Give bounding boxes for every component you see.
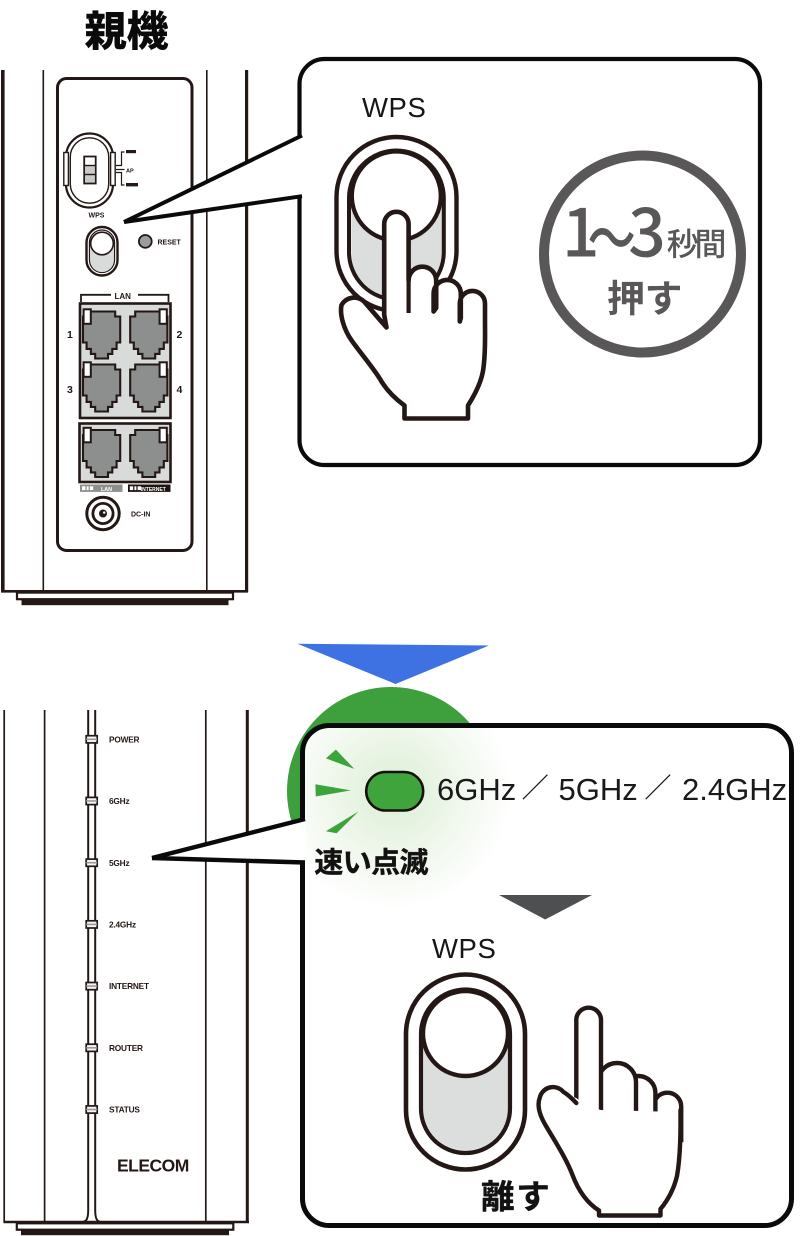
svg-text:3: 3 (67, 384, 73, 396)
svg-text:INTERNET: INTERNET (109, 981, 149, 991)
svg-text:DC-IN: DC-IN (131, 512, 150, 519)
svg-text:1: 1 (67, 329, 73, 341)
svg-text:STATUS: STATUS (109, 1105, 140, 1115)
svg-text:INTERNET: INTERNET (141, 487, 166, 493)
svg-text:2.4GHz: 2.4GHz (109, 920, 136, 930)
svg-text:6GHz: 6GHz (437, 772, 516, 807)
svg-text:5GHz: 5GHz (559, 772, 638, 807)
svg-text:LAN: LAN (115, 292, 132, 301)
svg-text:ELECOM: ELECOM (117, 1156, 189, 1176)
svg-text:POWER: POWER (109, 734, 140, 744)
svg-text:5GHz: 5GHz (109, 858, 129, 868)
svg-text:WPS: WPS (362, 92, 426, 123)
svg-text:RESET: RESET (158, 240, 182, 247)
svg-text:2.4GHz: 2.4GHz (682, 772, 787, 807)
svg-text:4: 4 (177, 384, 183, 396)
svg-text:WPS: WPS (432, 933, 496, 964)
svg-text:LAN: LAN (101, 487, 112, 493)
svg-text:AP: AP (126, 169, 134, 175)
svg-text:ROUTER: ROUTER (109, 1043, 143, 1053)
svg-text:6GHz: 6GHz (109, 796, 129, 806)
svg-text:WPS: WPS (89, 213, 105, 220)
svg-text:2: 2 (177, 329, 183, 341)
